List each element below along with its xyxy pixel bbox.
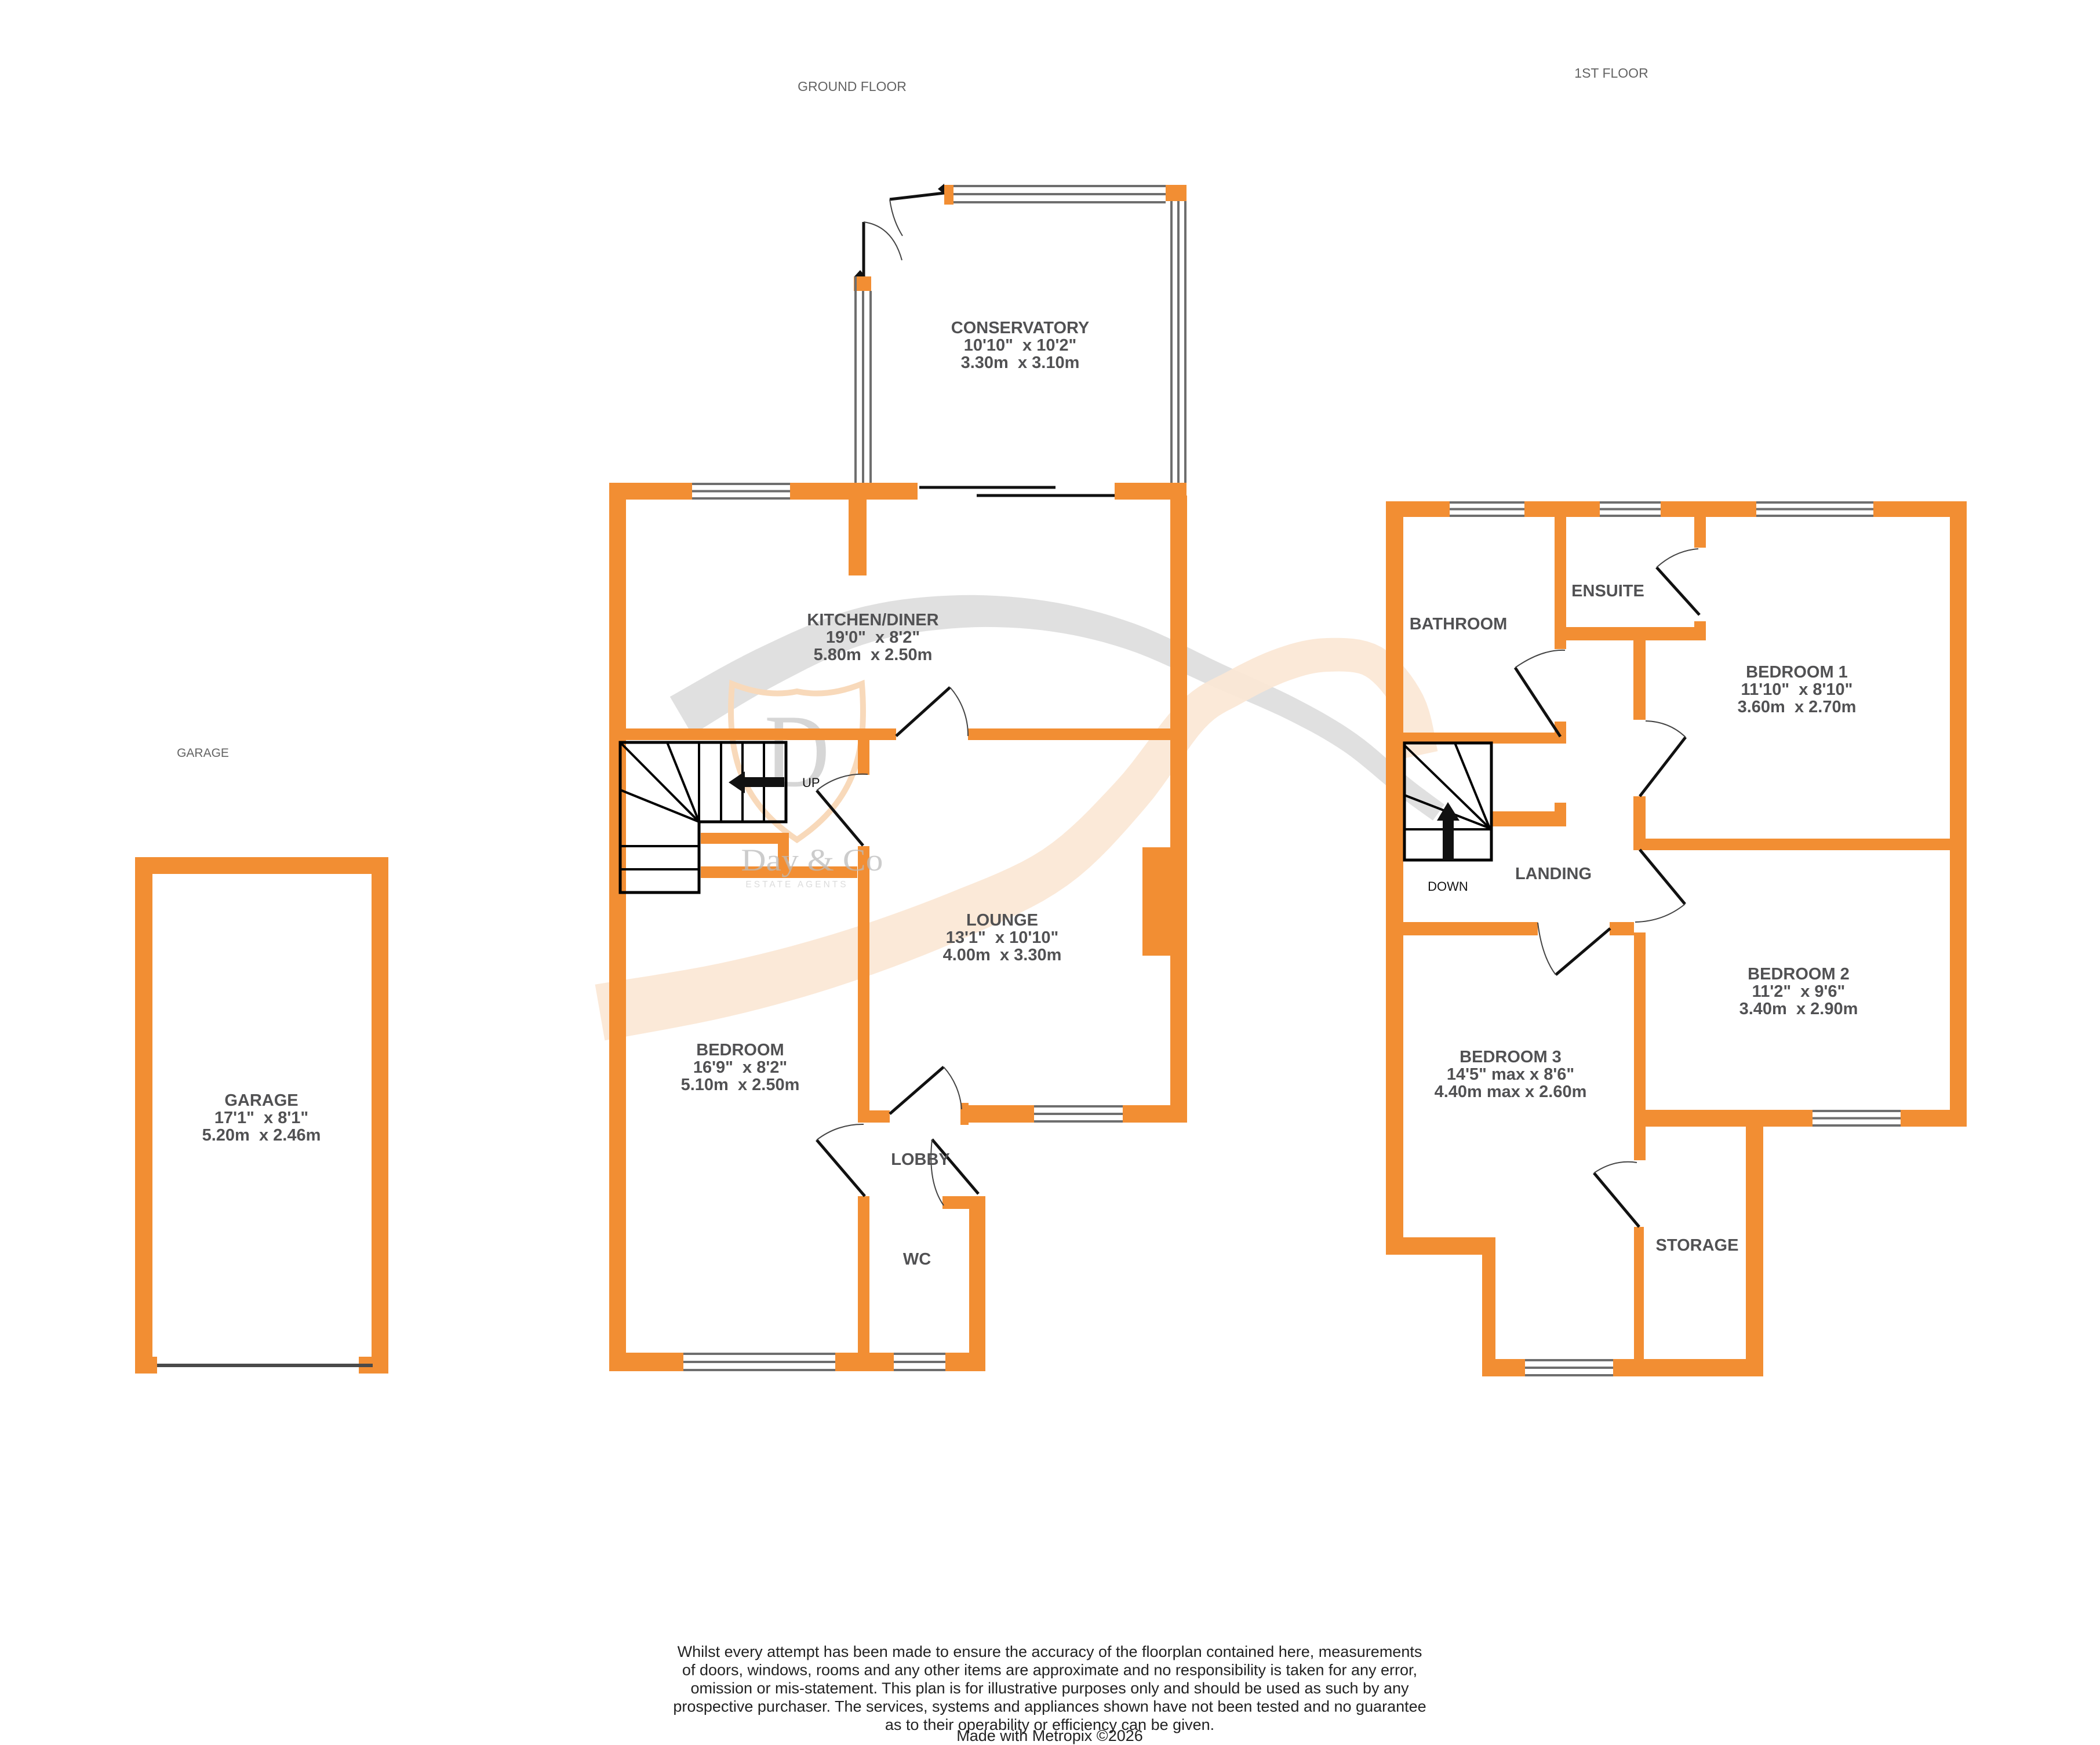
svg-text:GARAGE: GARAGE bbox=[177, 746, 229, 760]
svg-text:GARAGE: GARAGE bbox=[224, 1091, 298, 1110]
svg-text:UP: UP bbox=[802, 775, 820, 790]
svg-text:1ST FLOOR: 1ST FLOOR bbox=[1574, 65, 1648, 81]
svg-text:STORAGE: STORAGE bbox=[1656, 1236, 1739, 1255]
svg-text:5.10m x 2.50m: 5.10m x 2.50m bbox=[681, 1076, 800, 1094]
svg-text:4.00m x 3.30m: 4.00m x 3.30m bbox=[943, 946, 1062, 964]
svg-text:11'10" x 8'10": 11'10" x 8'10" bbox=[1741, 680, 1853, 699]
svg-text:prospective purchaser. The ser: prospective purchaser. The services, sys… bbox=[673, 1698, 1426, 1715]
svg-text:14'5" max x 8'6": 14'5" max x 8'6" bbox=[1447, 1065, 1574, 1084]
svg-text:BEDROOM 3: BEDROOM 3 bbox=[1460, 1048, 1562, 1066]
svg-text:11'2" x 9'6": 11'2" x 9'6" bbox=[1752, 982, 1846, 1001]
svg-text:KITCHEN/DINER: KITCHEN/DINER bbox=[807, 611, 938, 629]
svg-text:LOUNGE: LOUNGE bbox=[966, 911, 1038, 930]
svg-text:10'10" x 10'2": 10'10" x 10'2" bbox=[964, 336, 1077, 355]
svg-text:17'1" x 8'1": 17'1" x 8'1" bbox=[214, 1109, 308, 1127]
svg-text:16'9" x 8'2": 16'9" x 8'2" bbox=[693, 1058, 787, 1077]
svg-text:omission or mis-statement. Thi: omission or mis-statement. This plan is … bbox=[690, 1680, 1409, 1697]
svg-text:LOBBY: LOBBY bbox=[891, 1150, 950, 1169]
svg-text:BEDROOM: BEDROOM bbox=[696, 1041, 784, 1059]
svg-text:5.80m x 2.50m: 5.80m x 2.50m bbox=[814, 646, 933, 664]
svg-text:19'0" x 8'2": 19'0" x 8'2" bbox=[826, 628, 920, 647]
svg-text:LANDING: LANDING bbox=[1515, 865, 1592, 883]
svg-text:DOWN: DOWN bbox=[1428, 879, 1468, 894]
svg-text:3.60m x 2.70m: 3.60m x 2.70m bbox=[1738, 698, 1857, 716]
svg-text:3.30m x 3.10m: 3.30m x 3.10m bbox=[961, 354, 1080, 372]
svg-text:3.40m x 2.90m: 3.40m x 2.90m bbox=[1739, 1000, 1858, 1018]
svg-text:4.40m max x 2.60m: 4.40m max x 2.60m bbox=[1435, 1083, 1587, 1101]
svg-text:BEDROOM 2: BEDROOM 2 bbox=[1748, 965, 1850, 983]
svg-text:Day & Co: Day & Co bbox=[741, 843, 883, 877]
svg-text:WC: WC bbox=[903, 1250, 931, 1269]
svg-text:ESTATE AGENTS: ESTATE AGENTS bbox=[745, 880, 848, 890]
svg-text:5.20m x 2.46m: 5.20m x 2.46m bbox=[202, 1126, 321, 1145]
svg-text:Made with Metropix ©2026: Made with Metropix ©2026 bbox=[956, 1727, 1143, 1744]
svg-text:of doors, windows, rooms and a: of doors, windows, rooms and any other i… bbox=[682, 1662, 1417, 1679]
svg-text:GROUND FLOOR: GROUND FLOOR bbox=[798, 79, 907, 94]
svg-text:Whilst every attempt has been: Whilst every attempt has been made to en… bbox=[678, 1643, 1422, 1660]
svg-text:BEDROOM 1: BEDROOM 1 bbox=[1746, 663, 1848, 682]
svg-text:BATHROOM: BATHROOM bbox=[1410, 615, 1508, 633]
svg-text:ENSUITE: ENSUITE bbox=[1571, 582, 1644, 600]
svg-text:CONSERVATORY: CONSERVATORY bbox=[951, 319, 1090, 337]
svg-text:13'1" x 10'10": 13'1" x 10'10" bbox=[946, 928, 1059, 947]
